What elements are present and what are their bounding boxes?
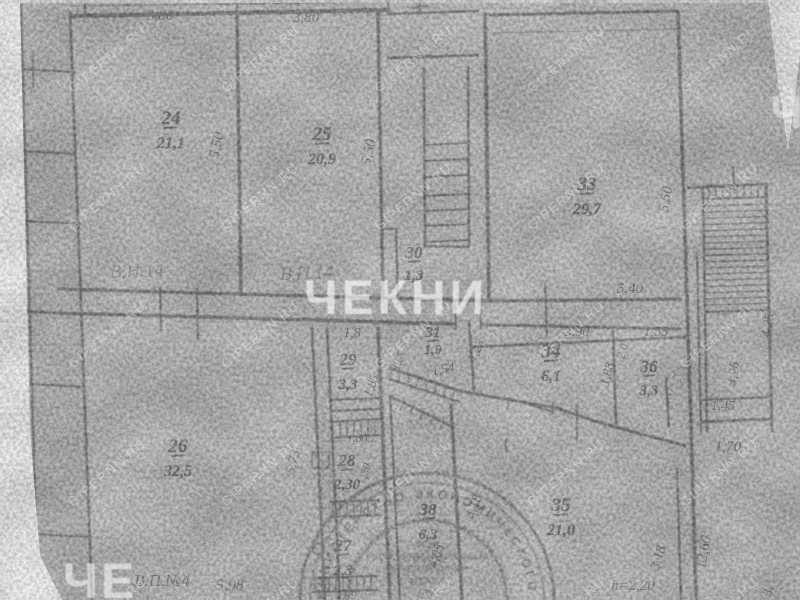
svg-text:Ч: Ч — [770, 86, 800, 138]
svg-text:ЧЕКНИ: ЧЕКНИ — [304, 272, 488, 325]
svg-text:ЧЕ: ЧЕ — [63, 553, 137, 600]
